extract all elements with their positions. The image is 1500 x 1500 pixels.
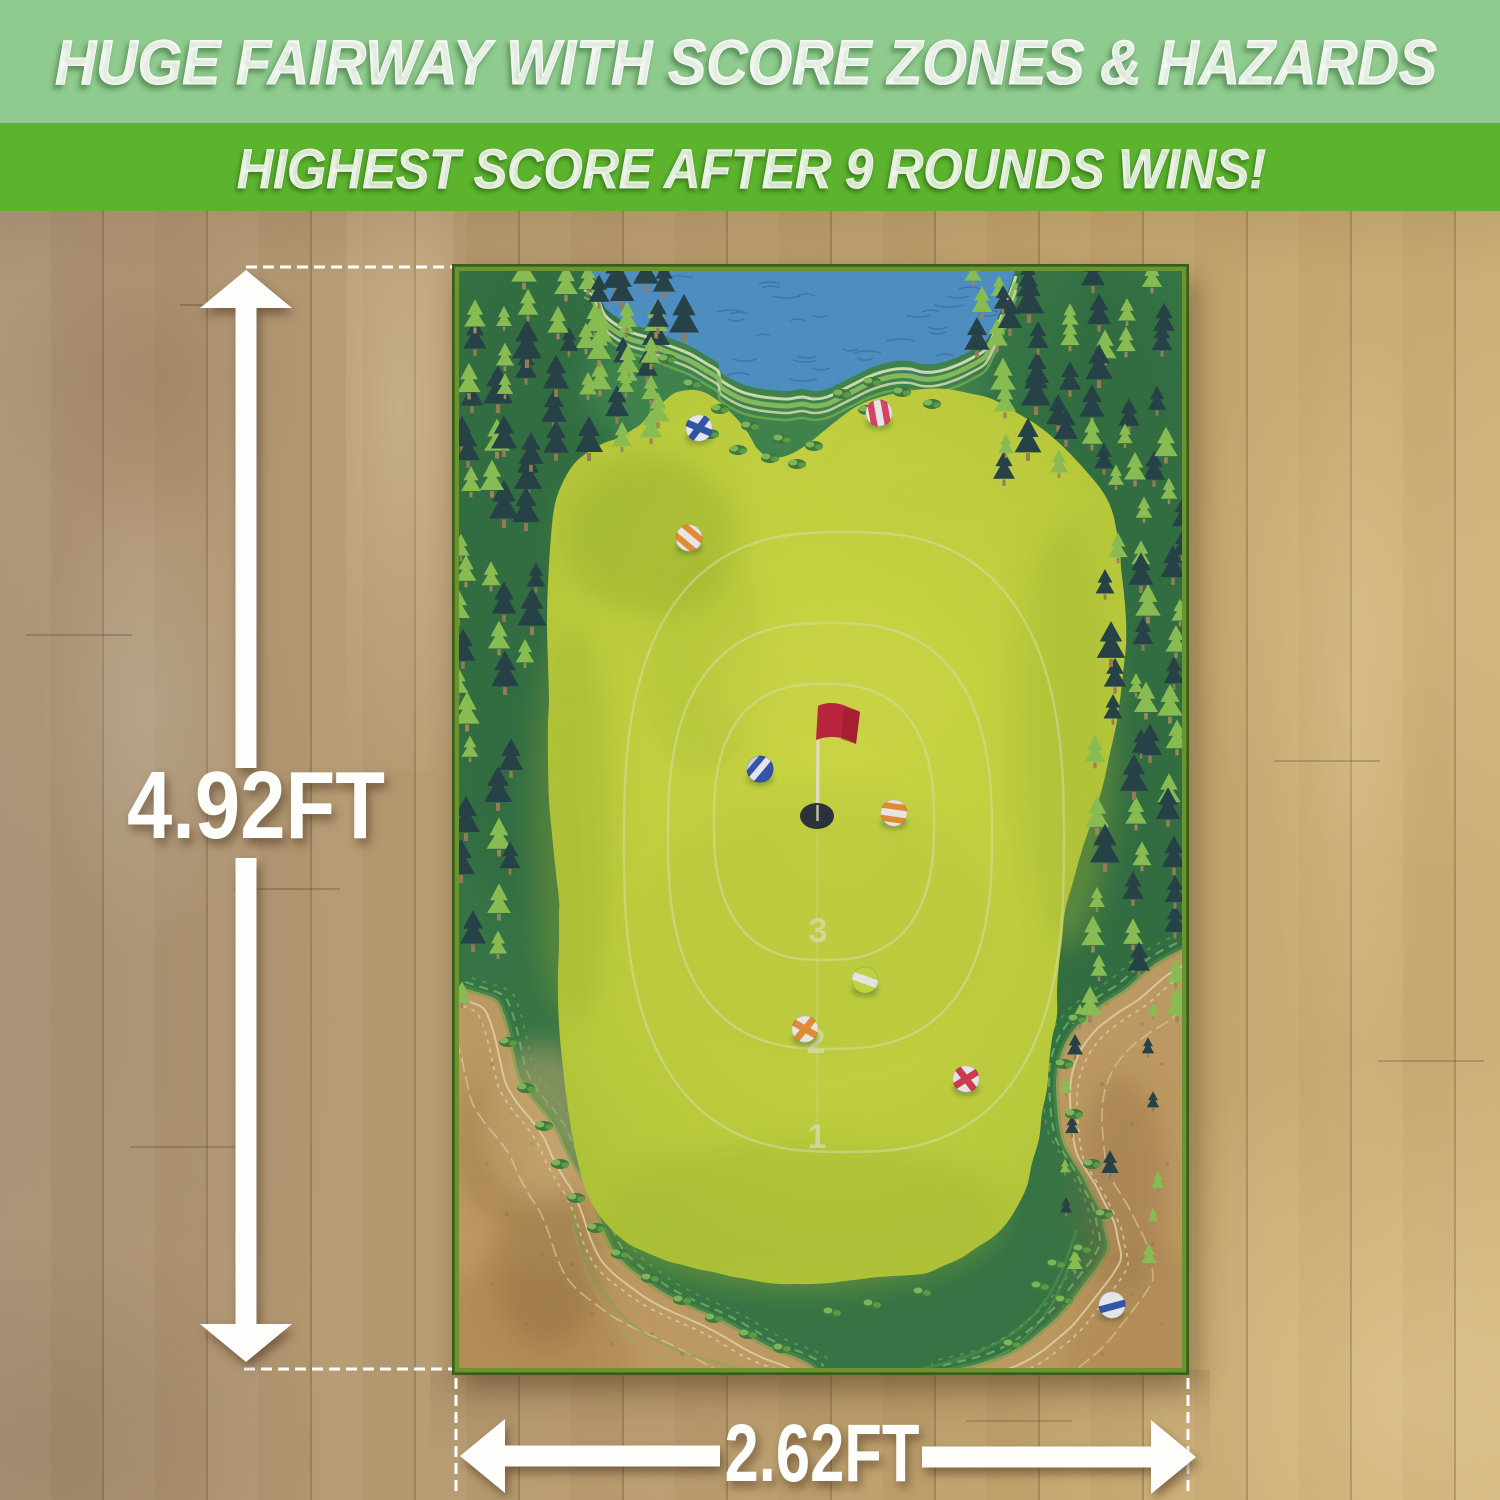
svg-text:4.92FT: 4.92FT: [127, 752, 385, 859]
svg-text:2.62FT: 2.62FT: [725, 1408, 920, 1499]
